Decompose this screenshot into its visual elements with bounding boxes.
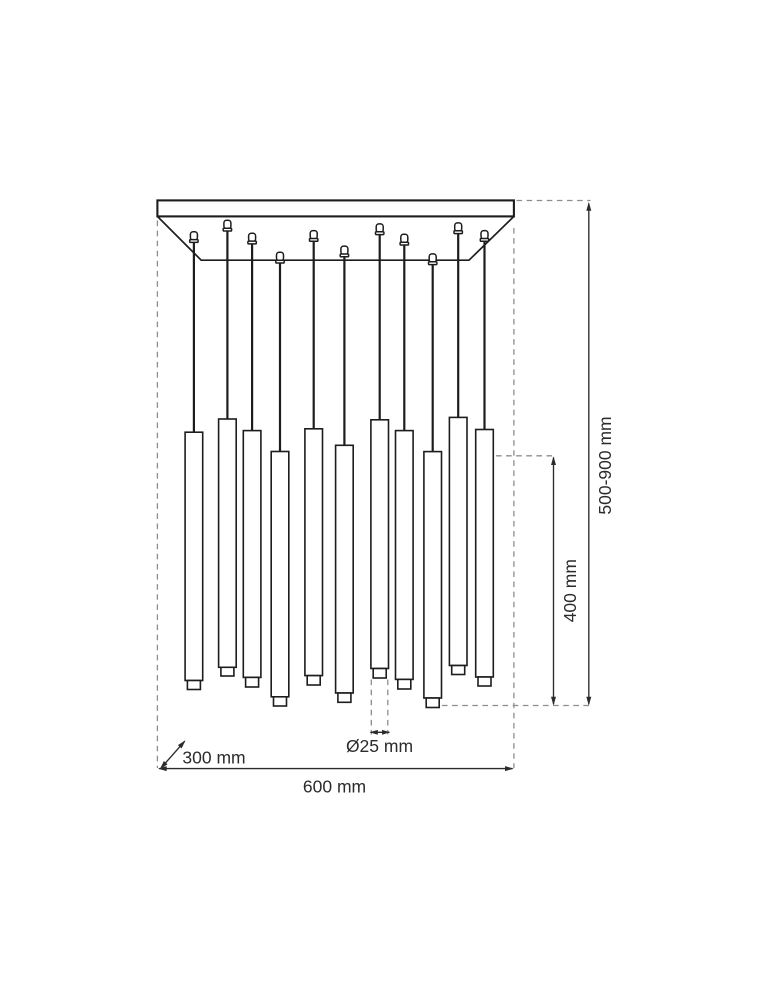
svg-text:400 mm: 400 mm xyxy=(560,559,580,622)
svg-text:300 mm: 300 mm xyxy=(182,747,245,767)
svg-text:Ø25 mm: Ø25 mm xyxy=(346,736,413,756)
svg-text:500-900 mm: 500-900 mm xyxy=(595,416,615,514)
svg-text:600 mm: 600 mm xyxy=(303,777,366,797)
